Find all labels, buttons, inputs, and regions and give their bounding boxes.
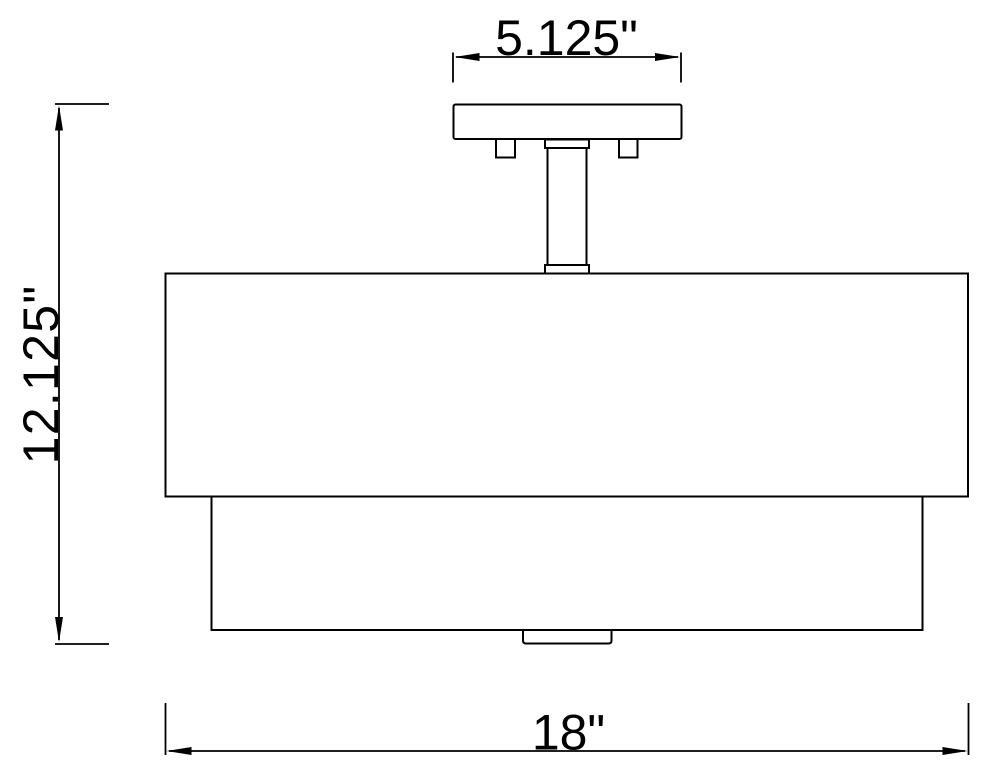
svg-text:5.125": 5.125" [495,10,638,66]
svg-text:12.125": 12.125" [13,285,69,465]
svg-text:18": 18" [532,705,605,761]
